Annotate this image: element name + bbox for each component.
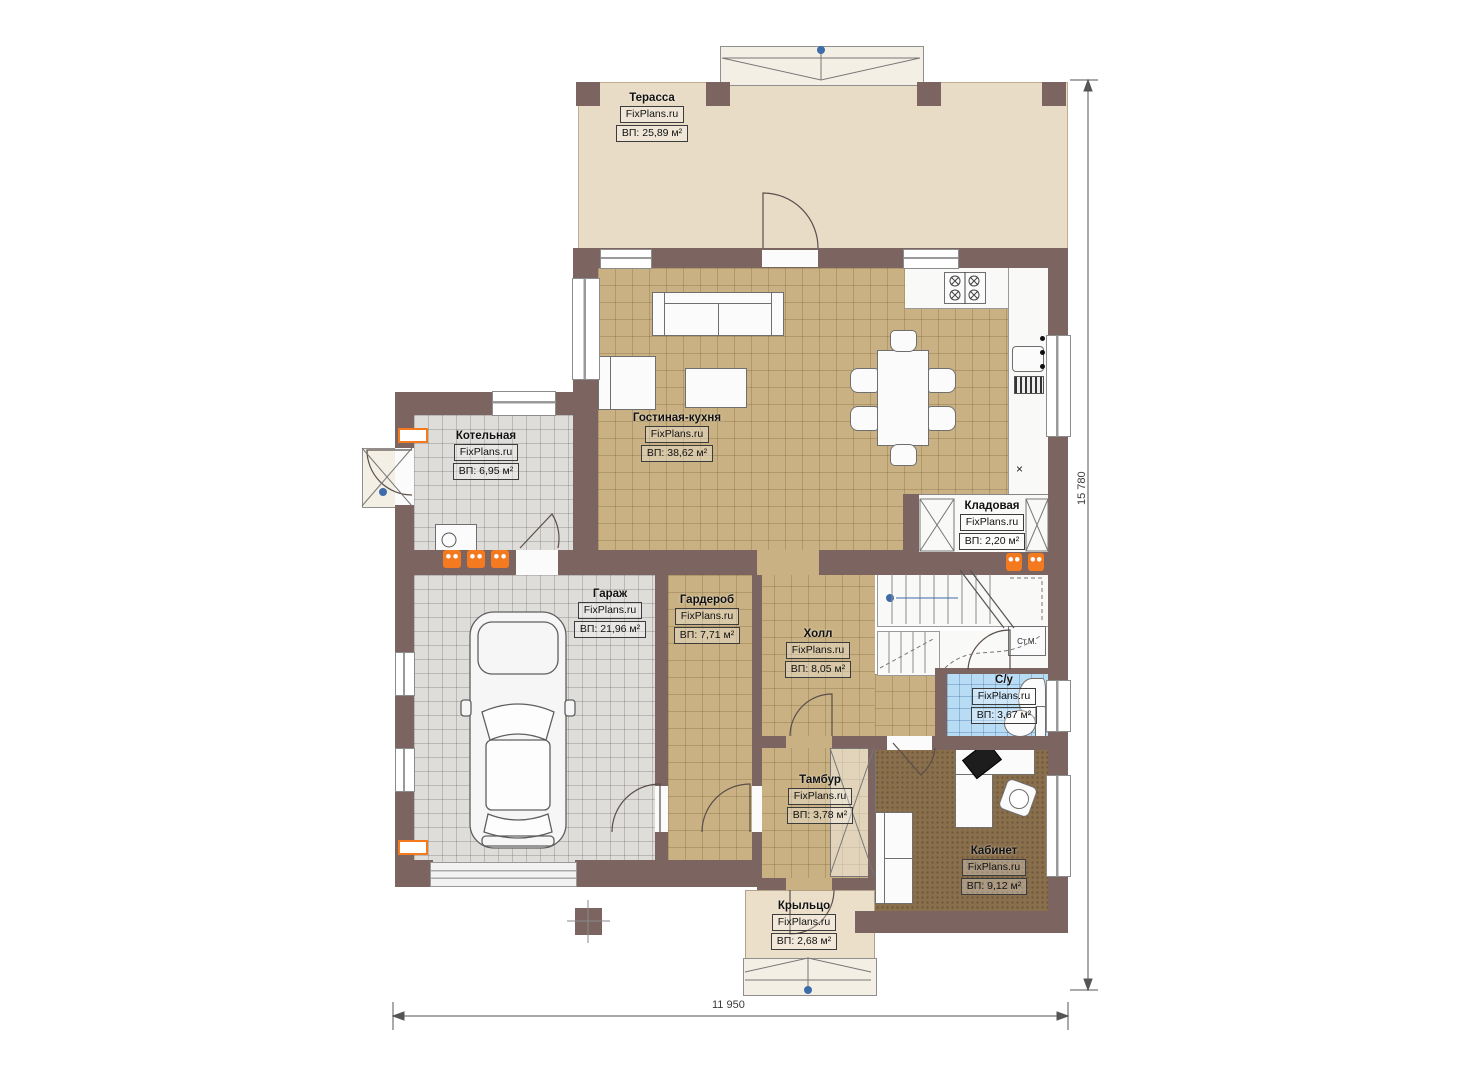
window-office-right (1046, 775, 1071, 877)
room-label-living-kitchen: Гостиная-кухня FixPlans.ru ВП: 38,62 м² (614, 412, 740, 462)
boiler-unit (435, 524, 477, 552)
terrace-column-4 (1042, 82, 1066, 106)
radiator-garage-wall (398, 840, 428, 855)
room-area-living-kitchen: ВП: 38,62 м² (641, 445, 713, 462)
room-brand-bathroom: FixPlans.ru (972, 688, 1037, 705)
room-area-bathroom: ВП: 3,67 м² (971, 707, 1037, 724)
vestibule-porch-door-opening (786, 878, 832, 890)
office-door-opening (887, 736, 932, 750)
room-brand-office: FixPlans.ru (962, 859, 1027, 876)
coffee-table (685, 368, 747, 408)
wall-living-boiler (573, 415, 598, 552)
room-area-garage: ВП: 21,96 м² (574, 621, 646, 638)
room-area-vestibule: ВП: 3,78 м² (787, 807, 853, 824)
room-name-vestibule: Тамбур (799, 774, 841, 786)
boiler-interior-door-opening (516, 550, 558, 575)
room-name-living-kitchen: Гостиная-кухня (633, 412, 721, 424)
room-label-bathroom: С/у FixPlans.ru ВП: 3,67 м² (958, 674, 1050, 724)
terrace-column-3 (917, 82, 941, 106)
room-area-hall: ВП: 8,05 м² (785, 661, 851, 678)
sofa-armrest-line-left (664, 292, 665, 336)
dining-chair-right-2 (928, 406, 956, 431)
room-label-porch: Крыльцо FixPlans.ru ВП: 2,68 м² (758, 900, 850, 950)
terrace-column-2 (706, 82, 730, 106)
room-name-boiler: Котельная (456, 430, 516, 442)
stairs-upper-flight (877, 573, 1050, 627)
radiator-boiler-3 (491, 550, 509, 568)
terrace-door-opening (762, 250, 818, 267)
counter-knob-2 (1040, 350, 1045, 355)
wardrobe-hall-door-opening (752, 786, 762, 832)
room-name-garage: Гараж (593, 588, 627, 600)
room-brand-boiler: FixPlans.ru (454, 444, 519, 461)
room-label-storage: Кладовая FixPlans.ru ВП: 2,20 м² (944, 500, 1040, 550)
window-boiler-top (492, 391, 556, 416)
wall-office-bottom (855, 911, 1066, 933)
stairs-lower-flight (877, 631, 940, 676)
sofa-armrest-line-right (771, 292, 772, 336)
window-living-left (572, 278, 600, 380)
room-area-office: ВП: 9,12 м² (961, 878, 1027, 895)
terrace-steps (720, 46, 924, 86)
room-brand-vestibule: FixPlans.ru (788, 788, 853, 805)
room-name-porch: Крыльцо (778, 900, 830, 912)
dining-chair-right-1 (928, 368, 956, 393)
room-area-porch: ВП: 2,68 м² (771, 933, 837, 950)
window-living-top (600, 249, 652, 269)
dimension-vertical-label: 15 780 (1076, 471, 1088, 505)
dining-chair-top (890, 330, 917, 352)
window-garage-1 (395, 652, 415, 696)
radiator-boiler-1 (443, 550, 461, 568)
stove (944, 272, 986, 304)
room-brand-living-kitchen: FixPlans.ru (645, 426, 710, 443)
room-brand-wardrobe: FixPlans.ru (675, 608, 740, 625)
wall-bathroom-left (935, 672, 947, 745)
office-chair-seat (1009, 789, 1029, 809)
dimension-line-vertical (1070, 80, 1098, 990)
room-label-vestibule: Тамбур FixPlans.ru ВП: 3,78 м² (778, 774, 862, 824)
counter-knob-3 (1040, 364, 1045, 369)
room-label-hall: Холл FixPlans.ru ВП: 8,05 м² (776, 628, 860, 678)
room-name-wardrobe: Гардероб (680, 594, 734, 606)
floor-plan-canvas: × Ст.М. (0, 0, 1474, 1080)
dining-chair-left-2 (850, 406, 878, 431)
room-label-office: Кабинет FixPlans.ru ВП: 9,12 м² (948, 845, 1040, 895)
room-name-bathroom: С/у (995, 674, 1013, 686)
wall-wardrobe-hall (752, 575, 762, 878)
wall-garage-bottom-left (395, 860, 433, 887)
garage-wardrobe-door-opening (655, 786, 668, 832)
dimension-horizontal-label: 11 950 (712, 999, 745, 1011)
room-name-storage: Кладовая (964, 500, 1019, 512)
room-brand-porch: FixPlans.ru (772, 914, 837, 931)
hall-vestibule-door-opening (786, 736, 832, 748)
detached-column (575, 908, 602, 935)
radiator-storage-1 (1006, 553, 1022, 571)
room-area-boiler: ВП: 6,95 м² (453, 463, 519, 480)
room-label-terrace: Терасса FixPlans.ru ВП: 25,89 м² (596, 92, 708, 142)
sofa-seat-split (718, 303, 719, 336)
armchair (598, 356, 656, 410)
wall-garage-bottom-right (575, 860, 757, 887)
wall-office-left (868, 745, 875, 878)
room-brand-terrace: FixPlans.ru (620, 106, 685, 123)
window-garage-2 (395, 748, 415, 792)
office-sofa-cushion-line (884, 858, 913, 859)
porch-steps (743, 958, 877, 996)
armchair-back-line (610, 356, 611, 410)
washing-machine-label: Ст.М. (1017, 637, 1037, 646)
garage-door (430, 862, 577, 887)
window-living-right (1046, 335, 1071, 437)
radiator-boiler-2 (467, 550, 485, 568)
kitchen-sink (1012, 346, 1044, 372)
room-name-terrace: Терасса (629, 92, 675, 104)
room-label-garage: Гараж FixPlans.ru ВП: 21,96 м² (558, 588, 662, 638)
room-area-terrace: ВП: 25,89 м² (616, 125, 688, 142)
counter-knob-1 (1040, 336, 1045, 341)
radiator-boiler-wall (398, 428, 428, 443)
room-area-wardrobe: ВП: 7,71 м² (674, 627, 740, 644)
washing-machine: Ст.М. (1008, 626, 1046, 656)
boiler-exterior-door-opening (395, 448, 414, 505)
dining-chair-left-1 (850, 368, 878, 393)
room-brand-hall: FixPlans.ru (786, 642, 851, 659)
kitchen-x-mark: × (1016, 462, 1023, 476)
dish-rack (1014, 376, 1044, 394)
radiator-storage-2 (1028, 553, 1044, 571)
room-brand-storage: FixPlans.ru (960, 514, 1025, 531)
room-label-wardrobe: Гардероб FixPlans.ru ВП: 7,71 м² (662, 594, 752, 644)
dining-chair-bottom (890, 444, 917, 466)
office-desk-return (955, 774, 993, 828)
room-area-storage: ВП: 2,20 м² (959, 533, 1025, 550)
living-hall-passage (757, 550, 819, 575)
room-name-hall: Холл (804, 628, 833, 640)
window-kitchen-top (903, 249, 959, 269)
room-brand-garage: FixPlans.ru (578, 602, 643, 619)
room-name-office: Кабинет (971, 845, 1018, 857)
hall-floor-extension (875, 674, 938, 745)
room-label-boiler: Котельная FixPlans.ru ВП: 6,95 м² (430, 430, 542, 480)
dining-table (877, 350, 929, 446)
